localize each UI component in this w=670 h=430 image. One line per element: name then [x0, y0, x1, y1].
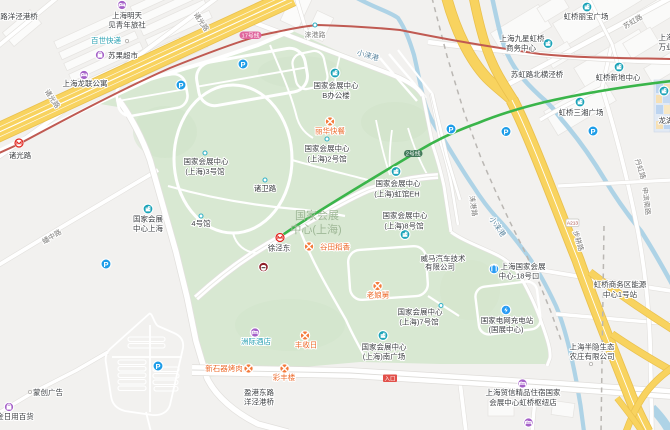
svg-text:盈港东路: 盈港东路	[244, 387, 274, 397]
svg-text:国家会展中心: 国家会展中心	[362, 342, 407, 352]
svg-text:中心上海: 中心上海	[133, 223, 163, 233]
svg-text:虹桥新地中心: 虹桥新地中心	[596, 72, 641, 82]
svg-text:农庄有限公司: 农庄有限公司	[570, 351, 615, 361]
svg-text:有限公司: 有限公司	[425, 262, 455, 272]
svg-text:(上海)8号馆: (上海)8号馆	[384, 221, 424, 231]
svg-text:国家会展中心: 国家会展中心	[376, 178, 421, 188]
svg-text:国家会展中心: 国家会展中心	[305, 143, 350, 153]
svg-text:国家会展: 国家会展	[295, 208, 339, 222]
svg-text:上海贸信精品住宿国家: 上海贸信精品住宿国家	[486, 387, 561, 397]
svg-text:见青年旅社: 见青年旅社	[108, 20, 146, 30]
svg-text:商务中心: 商务中心	[506, 43, 536, 53]
svg-text:(上海)2号馆: (上海)2号馆	[307, 154, 347, 164]
svg-text:徐泾东: 徐泾东	[268, 243, 291, 253]
svg-text:国家会展中心: 国家会展中心	[314, 80, 359, 90]
svg-text:上海半隐生态: 上海半隐生态	[570, 342, 615, 352]
svg-text:谷田稻香: 谷田稻香	[320, 242, 350, 252]
svg-text:中心-18号口: 中心-18号口	[499, 271, 540, 281]
svg-text:国家会展: 国家会展	[133, 214, 163, 224]
svg-text:国家会展中心: 国家会展中心	[184, 156, 229, 166]
svg-text:虹桥丽宝广场: 虹桥丽宝广场	[564, 11, 609, 21]
svg-text:丰收日: 丰收日	[295, 340, 318, 350]
svg-text:B办公楼: B办公楼	[322, 90, 350, 100]
svg-text:蒙创广告: 蒙创广告	[33, 387, 63, 397]
svg-text:国家会展中心: 国家会展中心	[398, 307, 443, 317]
svg-text:洲际酒店: 洲际酒店	[241, 336, 271, 346]
svg-text:虹桥三湘广场: 虹桥三湘广场	[559, 107, 604, 117]
svg-text:国家电网充电站: 国家电网充电站	[481, 315, 534, 325]
svg-text:上海国家会展: 上海国家会展	[501, 261, 546, 271]
svg-text:诸光路: 诸光路	[9, 150, 32, 160]
svg-text:(上海)虹馆EH: (上海)虹馆EH	[374, 189, 419, 199]
svg-text:4号馆: 4号馆	[191, 218, 211, 228]
svg-text:金日用百货: 金日用百货	[0, 411, 34, 421]
svg-text:洋泾港桥: 洋泾港桥	[244, 397, 274, 407]
svg-text:17号线: 17号线	[241, 31, 259, 39]
svg-text:(上海)7号馆: (上海)7号馆	[399, 317, 439, 327]
svg-text:苏果超市: 苏果超市	[108, 50, 138, 60]
svg-text:彩丰楼: 彩丰楼	[273, 372, 296, 382]
svg-text:A213: A213	[567, 221, 579, 227]
svg-text:上海明天: 上海明天	[112, 10, 142, 20]
svg-text:苏虹路北横泾桥: 苏虹路北横泾桥	[511, 69, 564, 79]
svg-text:丽华快餐: 丽华快餐	[315, 126, 345, 136]
svg-text:2号线: 2号线	[406, 150, 421, 158]
svg-text:中心(上海): 中心(上海)	[290, 222, 341, 236]
svg-text:中心1号站: 中心1号站	[603, 289, 638, 299]
svg-text:上海九星虹桥: 上海九星虹桥	[500, 33, 545, 43]
svg-text:上海龙联公寓: 上海龙联公寓	[63, 78, 108, 88]
svg-text:(国展中心): (国展中心)	[489, 324, 524, 334]
svg-text:涞港路: 涞港路	[305, 30, 326, 39]
svg-text:入口: 入口	[384, 375, 395, 382]
svg-text:虹桥商务区能源: 虹桥商务区能源	[594, 279, 647, 289]
svg-text:(上海)3号馆: (上海)3号馆	[185, 166, 225, 176]
svg-text:老娘舅: 老娘舅	[367, 290, 390, 300]
svg-text:龙湖: 龙湖	[659, 115, 670, 125]
svg-text:威马汽车技术: 威马汽车技术	[421, 253, 466, 263]
svg-text:诸卫路: 诸卫路	[254, 183, 277, 193]
svg-text:新石器烤肉: 新石器烤肉	[205, 363, 243, 373]
svg-text:万业: 万业	[659, 42, 670, 52]
svg-text:百世快递: 百世快递	[91, 35, 121, 45]
svg-text:上海: 上海	[659, 32, 670, 42]
svg-text:(上海)南广场: (上海)南广场	[363, 351, 406, 361]
svg-text:国家会展中心: 国家会展中心	[383, 210, 428, 220]
svg-text:会展中心虹桥枢纽店: 会展中心虹桥枢纽店	[489, 397, 557, 407]
svg-text:路洋泾港桥: 路洋泾港桥	[0, 11, 38, 21]
